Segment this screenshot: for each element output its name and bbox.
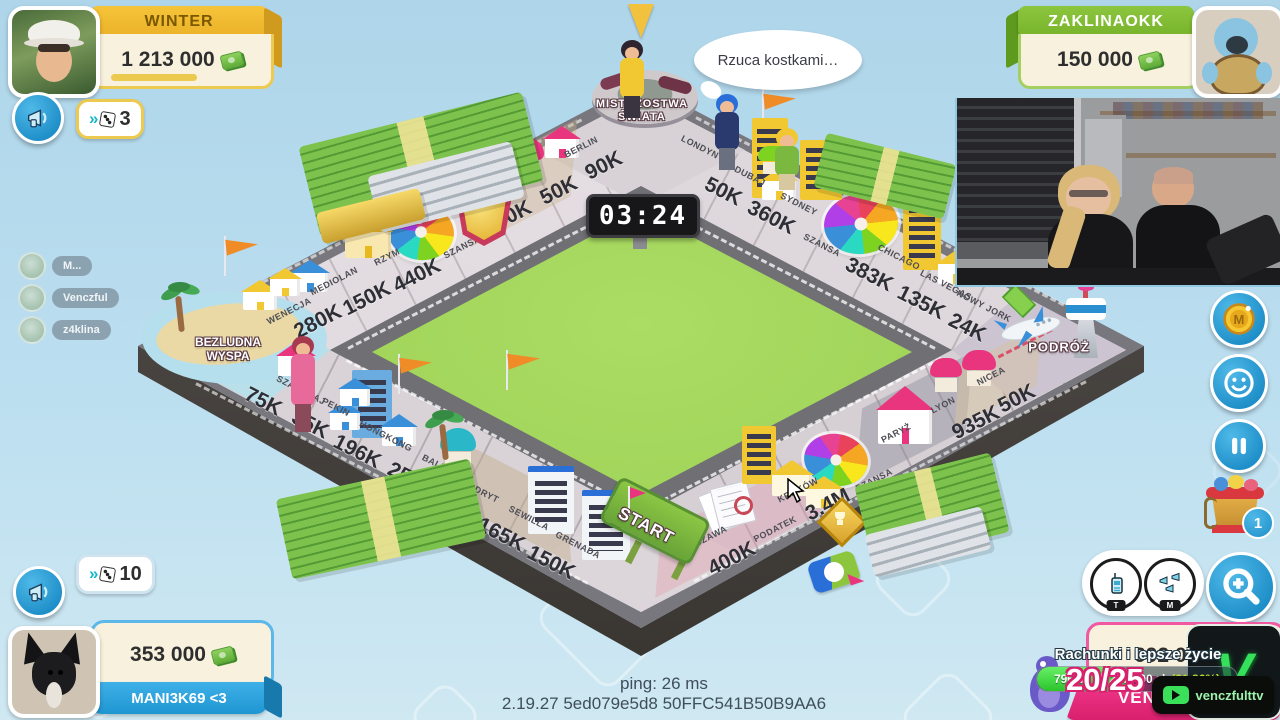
hotkey-label: T [1107, 600, 1126, 611]
pennant-flag-icon [398, 354, 438, 394]
webcam-overlay [955, 98, 1280, 287]
chat-username: Venczful [52, 288, 119, 308]
version-text: 2.19.27 5ed079e5d8 50FFC541B50B9AA6 [364, 694, 964, 714]
fast-forward-icon: » [89, 109, 96, 129]
building-nicea [930, 358, 962, 392]
avatar [8, 626, 100, 718]
chat-avatar [18, 284, 46, 312]
player-money: 150 000 [1057, 48, 1133, 72]
game-card-icon [806, 549, 862, 594]
tile-price-mediolan: 150K [339, 277, 395, 321]
character-pink-woman [288, 336, 318, 434]
toy-bucket-button[interactable]: 1 [1204, 477, 1266, 541]
player-panel-mani3k69: 353 000 MANI3K69 <3 [6, 616, 286, 718]
dice-counter-bottom: » 10 [76, 554, 155, 594]
pennant-flag-icon [224, 236, 264, 276]
smiley-button[interactable] [1210, 354, 1268, 412]
game-screen: 03:24 Rzuca kostkami… WINTER 1 213 000 Z… [0, 0, 1280, 720]
tile-price-nowy-jork: 24K [944, 309, 989, 348]
chat-username: z4klina [52, 320, 111, 340]
dice-icon [99, 565, 116, 582]
bucket-badge: 1 [1242, 507, 1274, 539]
status-text: ping: 26 ms 2.19.27 5ed079e5d8 50FFC541B… [364, 674, 964, 714]
player-money-card: 1 213 000 [90, 34, 274, 89]
player-money: 1 213 000 [121, 48, 214, 72]
tile-price-rzym: 440K [389, 254, 445, 298]
player-money-card: 353 000 [90, 620, 274, 690]
player-money-card: 150 000 [1018, 34, 1200, 89]
island-palm-icon [160, 282, 200, 332]
character-blue-man [712, 94, 742, 172]
bali-palm-icon [424, 410, 464, 460]
cash-icon [1137, 50, 1162, 70]
pause-button[interactable] [1212, 419, 1266, 473]
pause-icon [1224, 431, 1254, 461]
coin-icon: M [1222, 302, 1256, 336]
megaphone-trio-hotkey-button[interactable]: M [1144, 558, 1196, 610]
tile-price-berlin: 90K [581, 147, 626, 186]
ribbon-fold [264, 675, 282, 719]
megaphone-icon [24, 104, 52, 132]
ping-text: ping: 26 ms [364, 674, 964, 694]
round-timer: 03:24 [586, 194, 700, 238]
speech-bubble: Rzuca kostkami… [694, 30, 862, 90]
zoom-in-button[interactable] [1206, 552, 1276, 622]
dice-icon [99, 110, 116, 127]
fast-forward-icon: » [89, 564, 96, 584]
coin-button[interactable]: M [1210, 290, 1268, 348]
speech-bubble-text: Rzuca kostkami… [718, 52, 839, 69]
hotkey-label: M [1160, 600, 1181, 611]
tile-price-londyn: 50K [700, 173, 745, 212]
smiley-icon [1222, 366, 1256, 400]
corner-label-island: WYSPA [206, 349, 249, 363]
player-panel-winter: WINTER 1 213 000 [6, 4, 286, 96]
zoom-in-icon [1218, 564, 1264, 610]
money-underline [111, 74, 197, 81]
dice-count: 3 [119, 108, 130, 131]
cash-icon [219, 50, 244, 70]
player-panel-zaklinaokk: ZAKLINAOKK 150 000 [1000, 4, 1278, 96]
player-name: ZAKLINAOKK [1048, 13, 1164, 31]
building-pekin [340, 378, 370, 406]
player-money: 353 000 [130, 643, 206, 667]
avatar [8, 6, 100, 98]
chat-avatar [18, 252, 46, 280]
megaphone-button[interactable] [13, 566, 65, 618]
dice-count: 10 [119, 563, 141, 586]
chat-row: z4klina [18, 316, 111, 344]
youtube-button[interactable]: venczfulttv [1152, 676, 1274, 714]
character-host [617, 40, 647, 120]
player-name: WINTER [144, 13, 213, 31]
pennant-flag-icon [506, 350, 546, 390]
chat-avatar [18, 316, 46, 344]
dice-counter-top: » 3 [76, 99, 144, 139]
corner-label-island: BEZLUDNA [195, 335, 261, 349]
turn-pointer-icon [628, 4, 654, 38]
corner-label-travel: PODRÓŻ [1028, 340, 1090, 355]
money-stack [276, 458, 487, 579]
avatar [1192, 6, 1280, 98]
walkie-talkie-hotkey-button[interactable]: T [1090, 558, 1142, 610]
mouse-cursor [786, 478, 806, 504]
player-name-ribbon: MANI3K69 <3 [90, 682, 268, 714]
goal-title: Rachunki i lepsze życie [1036, 646, 1240, 663]
megaphone-button[interactable] [12, 92, 64, 144]
player-name: MANI3K69 <3 [131, 690, 226, 707]
trophy-badge-icon [820, 500, 860, 540]
tile-price-chicago: 383K [841, 253, 897, 297]
youtube-play-icon [1163, 686, 1189, 704]
rolls-counter: 20/25 [1066, 662, 1144, 698]
megaphone-icon [25, 578, 53, 606]
building-krakow [742, 426, 776, 484]
youtube-label: venczfulttv [1196, 688, 1264, 703]
walkie-talkie-icon [1104, 572, 1128, 596]
chat-username: M... [52, 256, 92, 276]
building-wenecja [270, 268, 300, 296]
timer-value: 03:24 [599, 201, 687, 231]
cash-icon [210, 645, 235, 665]
chat-row: Venczful [18, 284, 119, 312]
character-blonde-woman [772, 128, 802, 192]
megaphone-trio-icon [1158, 572, 1182, 596]
svg-text:M: M [1234, 312, 1245, 327]
chat-row: M... [18, 252, 92, 280]
tile-price-szanghaj: 75K [240, 383, 285, 422]
